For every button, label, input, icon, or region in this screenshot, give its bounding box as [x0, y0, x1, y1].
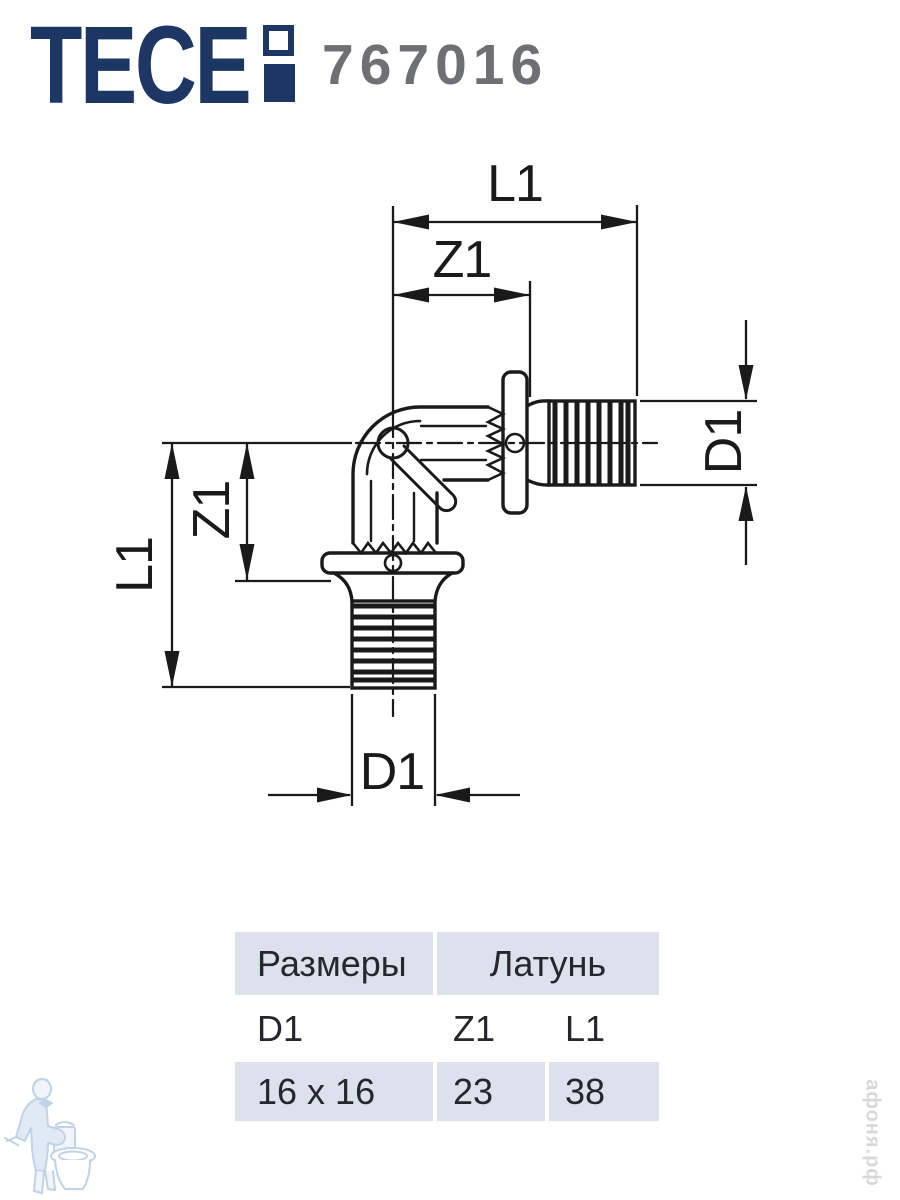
arrowhead	[165, 651, 180, 687]
dim-label-Z1-top: Z1	[433, 231, 492, 289]
table-header-sizes: Размеры	[235, 932, 433, 995]
arrowhead	[601, 215, 637, 230]
elbow-outer-contour	[353, 407, 488, 543]
dim-label-L1-left: L1	[106, 537, 164, 593]
dim-left-Z1: Z1	[183, 443, 331, 581]
plumber-watermark-icon	[2, 1053, 132, 1198]
dimension-annotations: L1 Z1 D1	[106, 155, 757, 806]
arrowhead	[435, 788, 470, 803]
dim-left-L1: L1	[106, 443, 352, 687]
arrowhead	[240, 443, 255, 479]
product-code: 767016	[322, 33, 548, 97]
dim-label-D1-bottom: D1	[360, 743, 424, 801]
brand-logo-square-outline-icon	[266, 28, 291, 53]
arrowhead	[317, 788, 352, 803]
arrowhead	[739, 486, 754, 521]
brand-logo-square-filled-icon	[264, 64, 295, 102]
dim-label-Z1-left: Z1	[183, 481, 241, 540]
ext-lines	[393, 205, 637, 412]
table-header-material: Латунь	[437, 932, 659, 995]
site-watermark: афоня.рф	[861, 1079, 884, 1187]
table-dim-l1: L1	[549, 995, 659, 1062]
table-value-l1: 38	[549, 1062, 659, 1121]
arrowhead	[240, 544, 255, 580]
fitting-outline	[322, 372, 657, 716]
brand-logo-text: TECE	[30, 4, 249, 127]
dimension-table: Размеры Латунь D1 Z1 L1 16 x 16 23 38	[235, 932, 659, 1121]
arrowhead	[393, 215, 429, 230]
arrowhead	[165, 443, 180, 479]
brand-logo: TECE 767016	[30, 4, 548, 127]
table-value-z1: 23	[437, 1062, 545, 1121]
dim-label-L1-top: L1	[487, 155, 543, 213]
datasheet-page: TECE 767016	[0, 0, 900, 1200]
arrowhead	[494, 288, 530, 303]
arrowhead	[739, 365, 754, 400]
arrowhead	[393, 288, 429, 303]
table-dim-z1: Z1	[437, 995, 545, 1062]
table-value-d1: 16 x 16	[235, 1062, 433, 1121]
dim-label-D1-right: D1	[695, 410, 753, 474]
table-dim-d1: D1	[235, 995, 433, 1062]
